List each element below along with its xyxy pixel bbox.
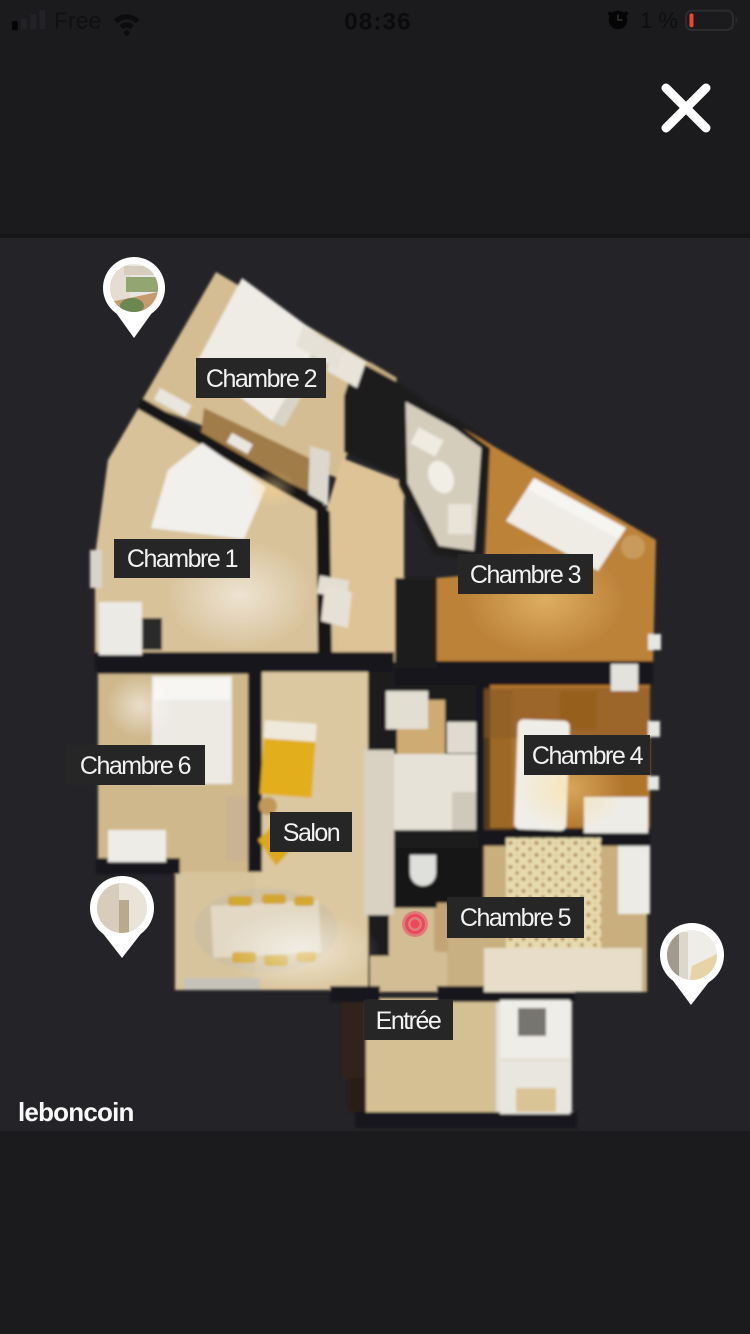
svg-text:Chambre 5: Chambre 5	[460, 904, 571, 932]
svg-text:leboncoin: leboncoin	[18, 1097, 134, 1127]
svg-text:Chambre 6: Chambre 6	[80, 752, 191, 780]
svg-text:Chambre 3: Chambre 3	[470, 561, 581, 589]
svg-text:Chambre 2: Chambre 2	[206, 365, 317, 393]
svg-text:Free: Free	[54, 8, 101, 34]
svg-text:Chambre 4: Chambre 4	[532, 742, 644, 770]
svg-text:Entrée: Entrée	[376, 1007, 441, 1035]
svg-text:Chambre 1: Chambre 1	[127, 545, 238, 573]
svg-text:08:36: 08:36	[344, 9, 411, 36]
svg-text:1 %: 1 %	[640, 8, 678, 33]
svg-text:Salon: Salon	[283, 819, 340, 847]
